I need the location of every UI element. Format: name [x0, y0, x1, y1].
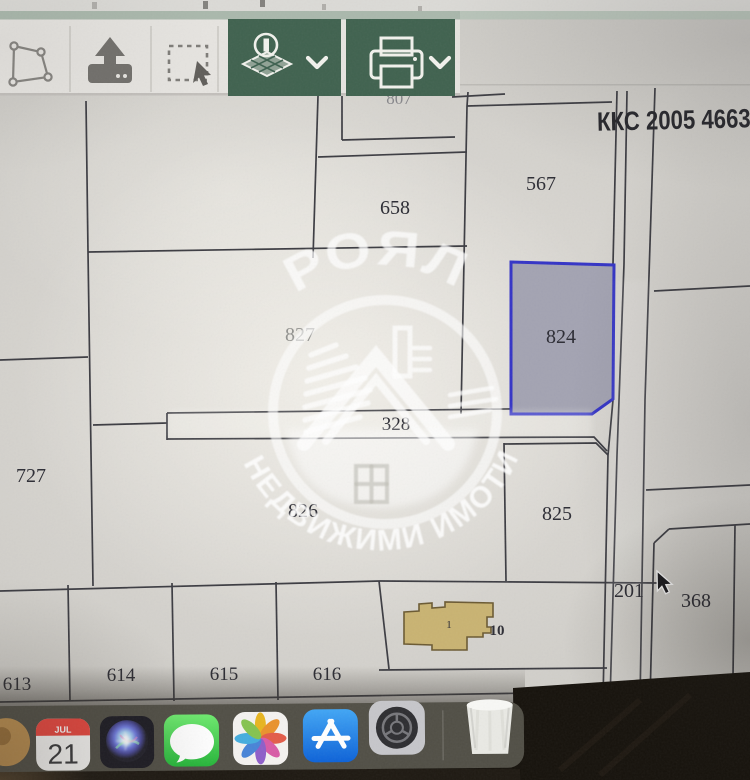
svg-text:JUL: JUL	[54, 725, 72, 735]
svg-text:21: 21	[47, 738, 78, 769]
